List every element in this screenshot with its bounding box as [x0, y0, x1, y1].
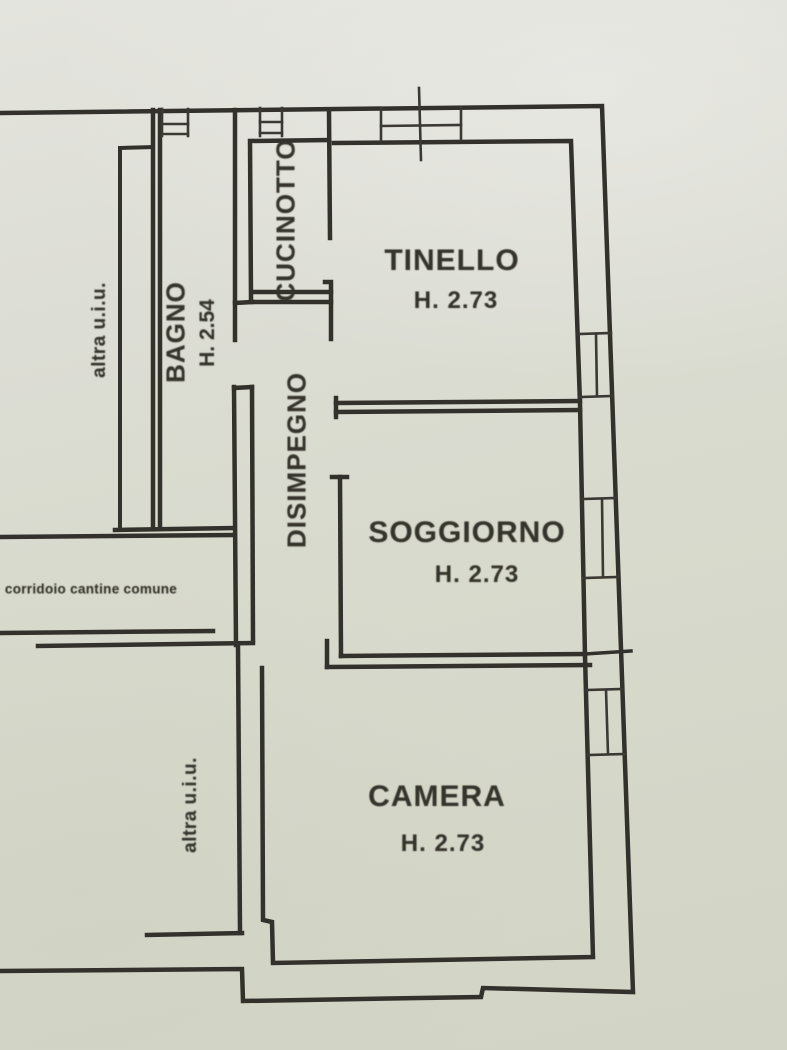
label-soggiorno-height: H. 2.73: [435, 561, 519, 589]
tinello-soggiorno-divider: [336, 398, 580, 417]
label-cucinotto: CUCINOTTO: [271, 138, 302, 301]
altra-uiu-top-walls: [120, 147, 153, 529]
soggiorno-left-wall: [332, 477, 347, 656]
label-soggiorno: SOGGIORNO: [368, 516, 565, 550]
label-tinello: TINELLO: [384, 244, 519, 278]
window-right-soggiorno: [582, 498, 618, 578]
section-mark-line: [419, 88, 421, 160]
label-tinello-height: H. 2.73: [414, 287, 498, 315]
window-top-2: [260, 108, 282, 136]
window-right-camera: [586, 689, 625, 755]
label-camera-height: H. 2.73: [401, 830, 485, 858]
label-bagno: BAGNO: [161, 281, 192, 383]
window-right-tinello: [578, 333, 612, 397]
label-camera: CAMERA: [368, 780, 506, 814]
floorplan-page: CUCINOTTO TINELLO H. 2.73 BAGNO H. 2.54 …: [0, 0, 787, 1050]
label-altra-uiu-top: altra u.i.u.: [89, 282, 111, 378]
outer-walls: [0, 106, 633, 1001]
label-corridoio-cantine: corridoio cantine comune: [5, 582, 177, 597]
label-bagno-height: H. 2.54: [196, 299, 220, 367]
label-disimpegno: DISIMPEGNO: [282, 372, 313, 548]
disimpegno-walls: [234, 387, 253, 645]
label-altra-uiu-bottom: altra u.i.u.: [180, 757, 202, 853]
